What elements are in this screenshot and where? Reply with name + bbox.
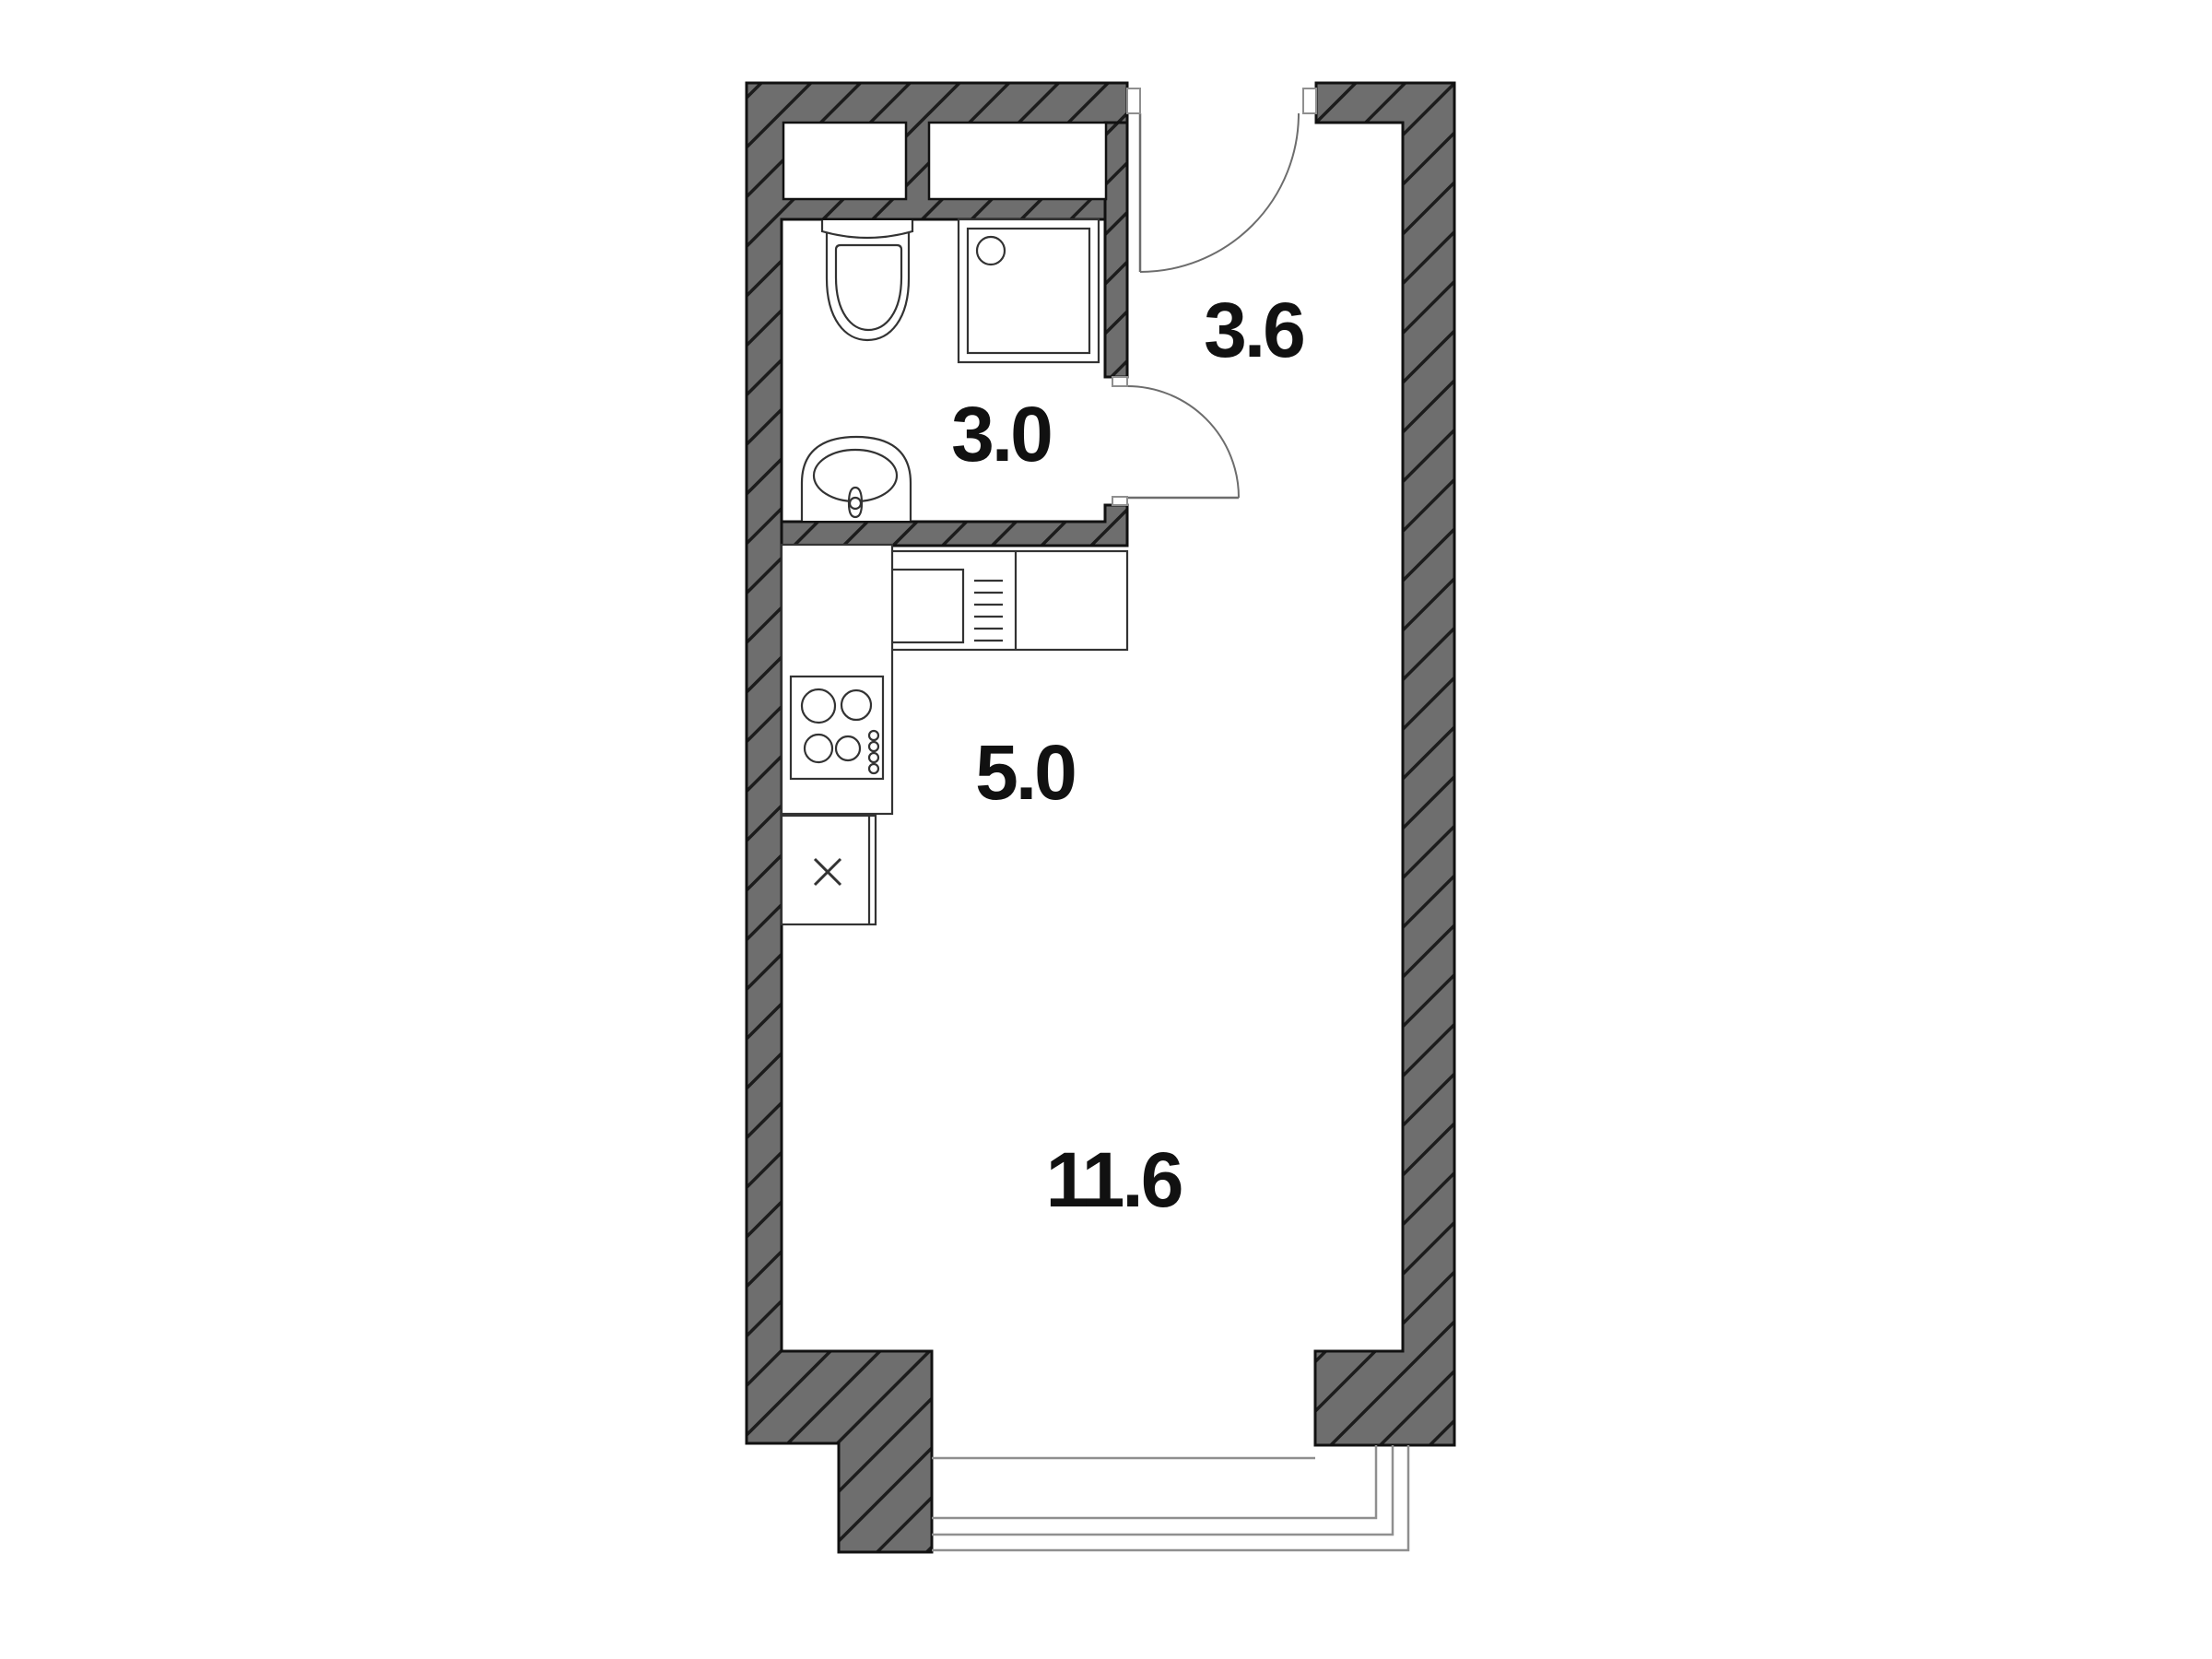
kitchen-area-label: 5.0 [975, 729, 1075, 816]
kitchen-fixtures [782, 545, 1127, 924]
bathroom-door [1112, 377, 1239, 505]
wall-niche-left [783, 123, 906, 199]
bathroom-door-swing-arc [1127, 386, 1239, 498]
bathroom-fixtures [802, 219, 1099, 521]
toilet-icon [822, 220, 912, 340]
stove-burner-3 [805, 735, 832, 762]
wall-right-and-top [1315, 83, 1454, 1445]
stove-burner-2 [841, 690, 871, 720]
bathroom-sink-icon [802, 437, 911, 521]
entrance-door-frame-left [1127, 88, 1140, 113]
entrance-door-swing-arc [1140, 113, 1299, 272]
kitchen-appliance [888, 570, 963, 642]
hallway-area-label: 3.6 [1204, 287, 1303, 373]
floor-plan-page: 3.0 3.6 5.0 11.6 [0, 0, 2212, 1659]
room-labels: 3.0 3.6 5.0 11.6 [951, 287, 1303, 1223]
bathroom-door-frame-top [1112, 377, 1127, 386]
entrance-door [1127, 88, 1316, 272]
entrance-door-frame-right [1303, 88, 1316, 113]
wall-niche-right [929, 123, 1106, 199]
toilet-tank [822, 220, 912, 238]
living-room-area-label: 11.6 [1046, 1136, 1182, 1223]
bathroom-door-frame-bottom [1112, 497, 1127, 505]
stove-body [791, 677, 883, 779]
stove-burner-1 [802, 689, 835, 723]
toilet-bowl-inner [836, 245, 901, 330]
bathroom-area-label: 3.0 [951, 391, 1051, 477]
sink-faucet-base [850, 498, 861, 509]
floor-plan-canvas: 3.0 3.6 5.0 11.6 [0, 0, 2212, 1659]
wall-partition-bathroom-hallway [1105, 123, 1127, 377]
stove-burner-4 [836, 736, 860, 760]
window-sill-line-2 [932, 1445, 1376, 1518]
base-cabinet-icon [782, 816, 876, 924]
shower-drain [977, 237, 1005, 265]
stove-icon [791, 677, 883, 779]
wall-niches [783, 123, 1106, 199]
window [932, 1445, 1408, 1550]
shower-icon [959, 219, 1099, 362]
